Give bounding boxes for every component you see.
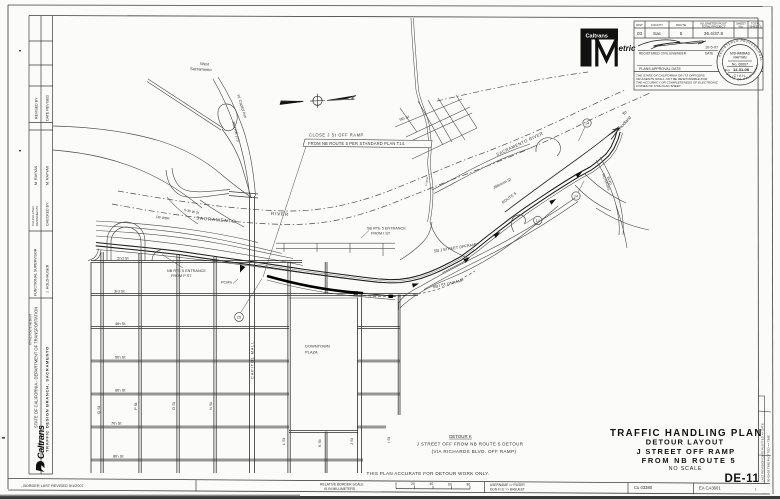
svg-text:CLOSE J St OFF RAMP: CLOSE J St OFF RAMP bbox=[309, 133, 364, 138]
svg-text:- BORDER LAST REVISED 5/1/2007: - BORDER LAST REVISED 5/1/2007 bbox=[21, 484, 84, 488]
svg-text:ROUTE: ROUTE bbox=[676, 23, 686, 27]
svg-text:DOWNTOWN: DOWNTOWN bbox=[305, 344, 330, 349]
svg-text:M. RAYYAN: M. RAYYAN bbox=[46, 165, 50, 185]
svg-text:Exp.: Exp. bbox=[725, 68, 731, 72]
svg-text:RTYNE ROUTE MILBRAIT: RTYNE ROUTE MILBRAIT bbox=[29, 313, 33, 345]
svg-text:No.: No. bbox=[739, 25, 744, 29]
svg-text:6th St: 6th St bbox=[115, 388, 126, 393]
svg-text:P St: P St bbox=[133, 402, 138, 410]
svg-text:FROM I ST: FROM I ST bbox=[371, 232, 391, 236]
svg-text:RAYYAN: RAYYAN bbox=[733, 56, 747, 60]
svg-text:N St: N St bbox=[208, 401, 213, 410]
svg-text:DETOUR LAYOUT: DETOUR LAYOUT bbox=[646, 438, 724, 447]
svg-text:i: i bbox=[755, 487, 756, 492]
svg-text:RELATIVE BORDER SCALE: RELATIVE BORDER SCALE bbox=[320, 482, 364, 486]
svg-text:L St: L St bbox=[281, 437, 286, 445]
svg-text:SHEETS: SHEETS bbox=[749, 25, 761, 29]
svg-text:14: 14 bbox=[574, 195, 578, 199]
svg-text:J STREET OFF FROM NB ROUTE 5 D: J STREET OFF FROM NB ROUTE 5 DETOUR bbox=[417, 441, 524, 446]
svg-text:FUNCTIONAL SUPERVISOR: FUNCTIONAL SUPERVISOR bbox=[34, 248, 38, 296]
svg-text:CHECKED BY: CHECKED BY bbox=[46, 202, 50, 226]
svg-text:FROM NB ROUTE 5 PER STANDARD P: FROM NB ROUTE 5 PER STANDARD PLAN T14. bbox=[308, 141, 405, 146]
svg-text:REVISED BY: REVISED BY bbox=[35, 97, 39, 119]
svg-text:00-00-00 TIME PLOTTED => TIM: 00-00-00 TIME PLOTTED => TIME bbox=[767, 435, 771, 482]
svg-text:Sac: Sac bbox=[653, 31, 662, 36]
svg-text:CAPITOL MALL: CAPITOL MALL bbox=[251, 341, 255, 379]
svg-text:40: 40 bbox=[430, 482, 434, 486]
svg-text:PLAZA: PLAZA bbox=[305, 350, 318, 355]
svg-text:COUNTY: COUNTY bbox=[651, 23, 663, 27]
svg-text:Q St: Q St bbox=[96, 405, 101, 414]
svg-text:NB RTE 5 ENTRANCE: NB RTE 5 ENTRANCE bbox=[167, 269, 206, 273]
svg-text:TOTAL PROJECT: TOTAL PROJECT bbox=[701, 25, 725, 29]
svg-text:RIVER: RIVER bbox=[271, 211, 289, 217]
svg-text:SB RTE 5 ENTRANCE: SB RTE 5 ENTRANCE bbox=[367, 227, 406, 231]
svg-text:M. RAYYAN: M. RAYYAN bbox=[34, 165, 38, 185]
svg-text:80: 80 bbox=[467, 483, 471, 487]
svg-text:2nd St: 2nd St bbox=[117, 256, 129, 261]
svg-text:0: 0 bbox=[395, 482, 397, 486]
svg-text:DIST: DIST bbox=[636, 23, 643, 27]
svg-text:13: 13 bbox=[536, 219, 540, 223]
svg-text:03: 03 bbox=[637, 31, 643, 36]
svg-text:PCMS: PCMS bbox=[221, 281, 232, 285]
svg-text:25: 25 bbox=[237, 316, 241, 320]
svg-text:8th St: 8th St bbox=[113, 454, 124, 459]
svg-text:J STREET OFF RAMP: J STREET OFF RAMP bbox=[637, 447, 736, 456]
svg-text:STATE OF CALIFORNIA - DEPART: STATE OF CALIFORNIA - DEPARTMENT OF TRAN… bbox=[34, 307, 39, 428]
svg-text:7th St: 7th St bbox=[111, 421, 122, 426]
svg-text:FROM P ST: FROM P ST bbox=[171, 274, 192, 278]
svg-text:O St: O St bbox=[171, 401, 176, 410]
svg-text:No. 60097: No. 60097 bbox=[732, 62, 748, 66]
svg-text:THIS PLAN ACCURATE FOR DETOUR: THIS PLAN ACCURATE FOR DETOUR WORK ONLY. bbox=[367, 471, 490, 476]
svg-text:DE-11: DE-11 bbox=[725, 473, 760, 485]
svg-text:J St: J St bbox=[349, 437, 354, 445]
svg-text:Cu 03380: Cu 03380 bbox=[634, 485, 653, 490]
svg-text:12-31-08: 12-31-08 bbox=[733, 67, 750, 72]
svg-text:FROM NB ROUTE 5: FROM NB ROUTE 5 bbox=[642, 456, 737, 465]
svg-text:DETOUR K: DETOUR K bbox=[449, 434, 472, 439]
svg-text:IS IN MILLIMETERS: IS IN MILLIMETERS bbox=[324, 487, 356, 491]
svg-text:K St: K St bbox=[317, 439, 322, 447]
svg-text:USERNAME => RUSER: USERNAME => RUSER bbox=[490, 483, 525, 487]
svg-text:DGN F.I.E => B4GUEST: DGN F.I.E => B4GUEST bbox=[490, 488, 525, 492]
svg-text:36.4/37.8: 36.4/37.8 bbox=[704, 31, 724, 36]
svg-text:J. HOLZHAUSER: J. HOLZHAUSER bbox=[46, 264, 50, 293]
svg-text:EA CA3601: EA CA3601 bbox=[699, 486, 721, 491]
svg-text:DATE REVISED: DATE REVISED bbox=[46, 95, 50, 121]
svg-text:etric: etric bbox=[619, 44, 636, 53]
svg-text:DESIGNED BY: DESIGNED BY bbox=[35, 205, 39, 226]
svg-text:PLANS APPROVAL DATE: PLANS APPROVAL DATE bbox=[639, 67, 681, 71]
svg-text:DATE: DATE bbox=[705, 52, 713, 56]
svg-text:REGISTERED CIVIL ENGINEER: REGISTERED CIVIL ENGINEER bbox=[639, 52, 687, 56]
svg-text:COPIES OF THIS PLAN SHEET.: COPIES OF THIS PLAN SHEET. bbox=[636, 84, 682, 88]
svg-text:NO SCALE: NO SCALE bbox=[669, 466, 703, 472]
svg-text:I St: I St bbox=[386, 436, 391, 443]
svg-text:Caltrans: Caltrans bbox=[36, 425, 46, 459]
svg-text:5: 5 bbox=[680, 31, 683, 36]
svg-text:5th St: 5th St bbox=[115, 355, 126, 360]
svg-text:CIVIL: CIVIL bbox=[734, 74, 747, 78]
svg-text:60: 60 bbox=[448, 482, 452, 486]
svg-text:3rd St: 3rd St bbox=[114, 289, 126, 294]
svg-text:20: 20 bbox=[411, 482, 415, 486]
svg-text:14: 14 bbox=[585, 122, 589, 126]
svg-text:4th St: 4th St bbox=[115, 321, 126, 326]
svg-text:Caltrans: Caltrans bbox=[586, 34, 608, 40]
svg-text:10-5-07: 10-5-07 bbox=[705, 45, 718, 49]
svg-text:(VIA RICHARDS BLVD. OFF RAMP): (VIA RICHARDS BLVD. OFF RAMP) bbox=[432, 449, 517, 454]
